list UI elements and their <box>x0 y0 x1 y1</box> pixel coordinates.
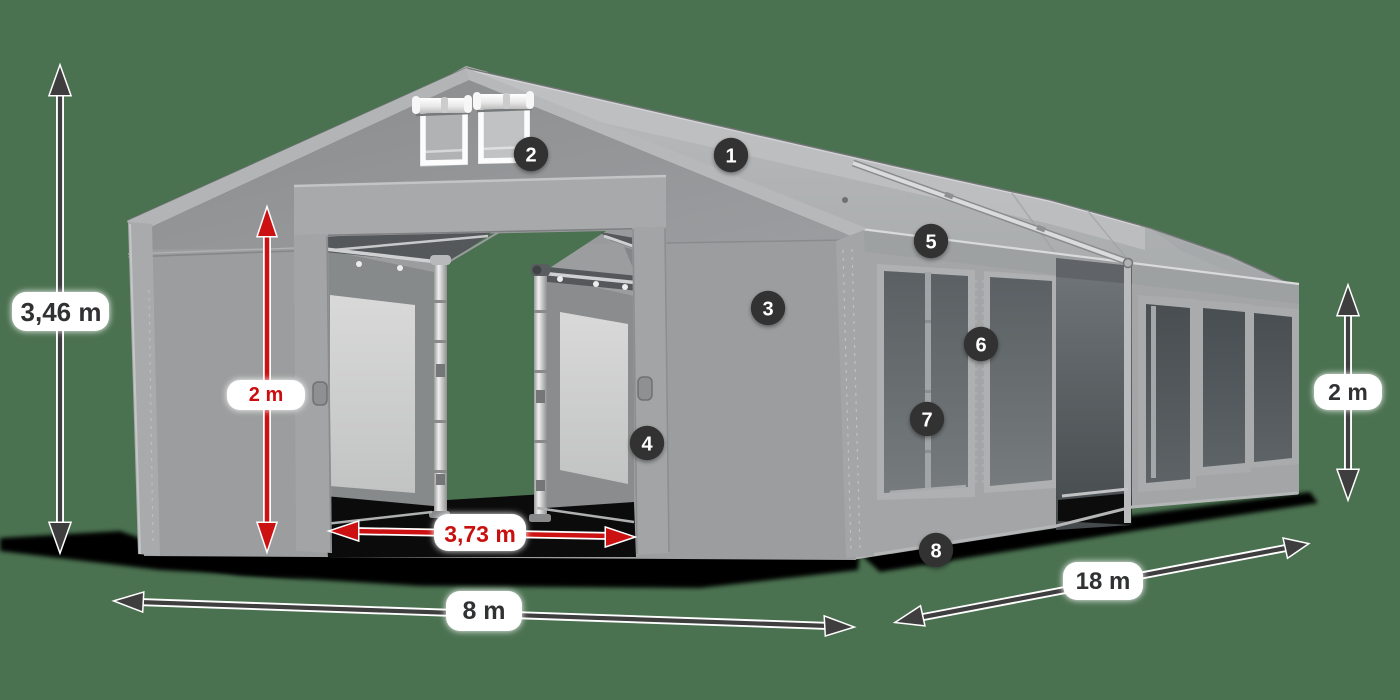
svg-text:18 m: 18 m <box>1076 568 1131 595</box>
svg-text:4: 4 <box>641 434 653 456</box>
svg-text:5: 5 <box>925 232 936 254</box>
svg-text:3,73 m: 3,73 m <box>444 521 516 547</box>
svg-text:6: 6 <box>975 335 986 357</box>
svg-text:8: 8 <box>930 541 941 563</box>
svg-text:7: 7 <box>921 410 932 432</box>
svg-text:3: 3 <box>762 299 773 321</box>
svg-text:2 m: 2 m <box>249 384 283 406</box>
svg-text:3,46 m: 3,46 m <box>21 297 102 327</box>
svg-text:2 m: 2 m <box>1328 379 1368 405</box>
svg-text:8 m: 8 m <box>462 597 505 625</box>
svg-text:1: 1 <box>725 146 736 168</box>
svg-text:2: 2 <box>525 145 536 167</box>
